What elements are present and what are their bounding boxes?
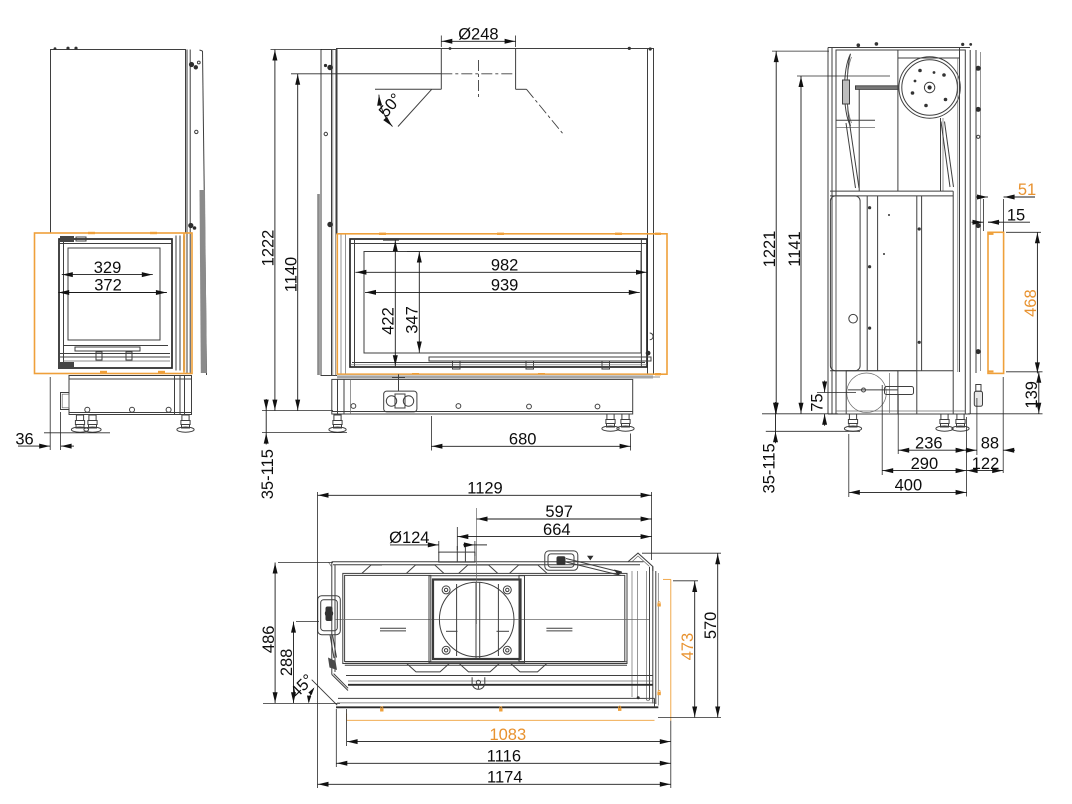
svg-text:1222: 1222 xyxy=(260,230,278,267)
svg-text:Ø124: Ø124 xyxy=(389,529,429,547)
svg-text:939: 939 xyxy=(491,277,519,295)
svg-text:122: 122 xyxy=(972,455,1000,473)
svg-text:Ø248: Ø248 xyxy=(458,26,498,44)
svg-text:486: 486 xyxy=(260,626,278,654)
svg-text:75: 75 xyxy=(809,393,827,411)
svg-text:236: 236 xyxy=(915,434,943,452)
svg-text:329: 329 xyxy=(94,259,122,277)
svg-text:1141: 1141 xyxy=(786,231,804,266)
svg-text:468: 468 xyxy=(1022,289,1040,317)
svg-text:982: 982 xyxy=(491,257,519,275)
svg-text:1083: 1083 xyxy=(489,726,526,744)
svg-text:422: 422 xyxy=(379,307,397,335)
svg-text:36: 36 xyxy=(15,430,33,448)
svg-text:288: 288 xyxy=(278,649,296,677)
svg-text:570: 570 xyxy=(702,612,720,640)
svg-text:1140: 1140 xyxy=(282,257,300,292)
svg-text:35-115: 35-115 xyxy=(259,449,277,499)
svg-text:347: 347 xyxy=(403,306,421,334)
svg-text:88: 88 xyxy=(981,434,999,452)
svg-text:372: 372 xyxy=(94,277,122,295)
svg-text:1129: 1129 xyxy=(467,480,502,498)
svg-text:35-115: 35-115 xyxy=(761,443,779,493)
svg-text:290: 290 xyxy=(911,455,939,473)
svg-text:1221: 1221 xyxy=(761,231,779,268)
svg-text:664: 664 xyxy=(543,521,571,539)
svg-text:473: 473 xyxy=(679,633,697,661)
svg-text:400: 400 xyxy=(895,477,923,495)
svg-text:1116: 1116 xyxy=(487,748,521,766)
svg-text:597: 597 xyxy=(545,503,573,521)
svg-text:15: 15 xyxy=(1007,206,1025,224)
svg-text:1174: 1174 xyxy=(487,769,522,787)
svg-text:139: 139 xyxy=(1023,381,1041,409)
svg-text:51: 51 xyxy=(1018,181,1036,199)
svg-text:680: 680 xyxy=(509,431,537,449)
